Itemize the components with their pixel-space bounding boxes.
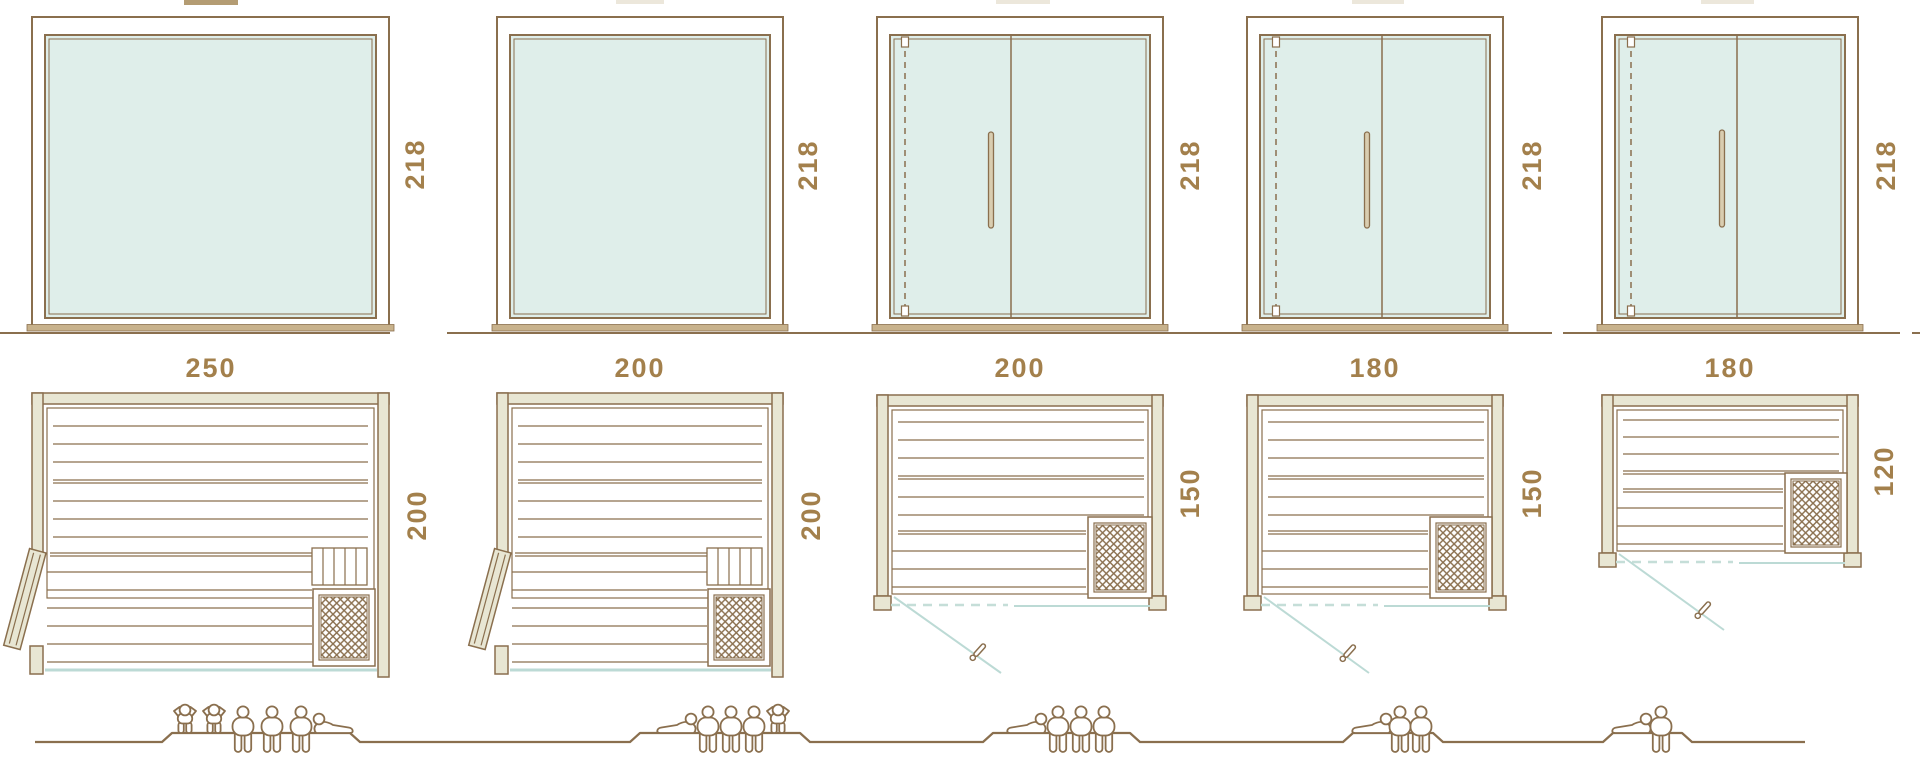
sauna-1-height-label: 218 (400, 138, 430, 189)
plan-wall-left (1247, 395, 1258, 596)
person-lying-icon (657, 714, 696, 733)
capacity-group-5 (1612, 706, 1671, 752)
plan-wall-right (1847, 395, 1858, 553)
sauna-3: 200 218 150 (872, 0, 1205, 673)
plan-door-post (495, 646, 508, 674)
plan-wall-top (1247, 395, 1503, 406)
elevation-sill (1242, 325, 1508, 332)
sauna-3-depth-label: 150 (1175, 467, 1205, 518)
person-sitting-icon (1071, 706, 1092, 752)
person-lying-icon (314, 714, 353, 733)
hinge-block-top (1273, 37, 1280, 47)
sauna-5-depth-label: 120 (1869, 445, 1899, 496)
capacity-group-1 (174, 705, 353, 752)
sauna-1: 250 218 200 (4, 0, 432, 677)
sauna-2-depth-label: 200 (796, 489, 826, 540)
heater-grille (1438, 525, 1484, 590)
sauna-4-elevation (1242, 17, 1508, 331)
plan-wall-right (1152, 395, 1163, 596)
heater-grille (321, 597, 367, 658)
person-sitting-icon (698, 706, 719, 752)
sauna-5-height-label: 218 (1871, 139, 1901, 190)
elevation-sill (27, 325, 394, 332)
sauna-size-diagram: 250 218 200 (0, 0, 1920, 770)
hinge-block-top (902, 37, 909, 47)
sauna-2-plan (469, 393, 783, 677)
person-standing-icon (767, 705, 789, 733)
sauna-3-height-label: 218 (1175, 139, 1205, 190)
hinge-block-bottom (902, 306, 909, 316)
person-sitting-icon (1651, 706, 1672, 752)
capacity-group-4 (1352, 706, 1431, 752)
plan-wall-right (1492, 395, 1503, 596)
person-sitting-icon (744, 706, 765, 752)
hinge-block-top (1628, 37, 1635, 47)
plan-wall-top (497, 393, 783, 404)
glass-door-swing-line (894, 597, 1001, 673)
open-wood-door (4, 549, 46, 650)
plan-wall-top (877, 395, 1163, 406)
sauna-2-elevation (492, 17, 788, 331)
sauna-5-width-label: 180 (1704, 353, 1755, 383)
cropped-top-fragment (996, 0, 1050, 4)
wall-foot-right (1844, 553, 1861, 567)
plan-door-post (30, 646, 43, 674)
person-sitting-icon (233, 706, 254, 752)
door-handle (1365, 132, 1370, 228)
side-bench (707, 548, 762, 585)
hinge-block-bottom (1273, 306, 1280, 316)
sauna-3-elevation (872, 17, 1168, 331)
sauna-3-width-label: 200 (994, 353, 1045, 383)
plan-wall-left (1602, 395, 1613, 553)
plan-wall-right (378, 393, 389, 677)
hinge-block-bottom (1628, 306, 1635, 316)
sauna-4-width-label: 180 (1349, 353, 1400, 383)
sauna-5-plan (1599, 395, 1861, 630)
sauna-1-elevation (27, 17, 394, 331)
plan-wall-top (1602, 395, 1858, 406)
glass-door-swing-line (1619, 554, 1724, 630)
person-sitting-icon (1411, 706, 1432, 752)
side-bench (312, 548, 367, 585)
sauna-1-width-label: 250 (185, 353, 236, 383)
door-handle (989, 132, 994, 228)
sauna-5: 180 218 120 (1597, 0, 1901, 630)
person-sitting-icon (721, 706, 742, 752)
diagram-canvas: 250 218 200 (0, 0, 1920, 770)
heater-grille (1096, 525, 1144, 590)
plan-wall-left (877, 395, 888, 596)
elevation-sill (872, 325, 1168, 332)
heater-grille (716, 597, 762, 658)
plan-wall-left (32, 393, 43, 555)
capacity-group-2 (657, 705, 789, 752)
plan-wall-top (32, 393, 389, 404)
capacity-group-3 (1007, 706, 1114, 752)
person-sitting-icon (262, 706, 283, 752)
glass-panel (45, 35, 376, 318)
person-lying-icon (1352, 714, 1391, 733)
sauna-1-depth-label: 200 (402, 489, 432, 540)
cropped-top-fragment (616, 0, 664, 4)
elevation-sill (492, 325, 788, 332)
open-wood-door (469, 549, 511, 650)
glass-panel (1615, 35, 1845, 318)
heater (1785, 473, 1847, 553)
plan-wall-right (772, 393, 783, 677)
wall-foot-left (1244, 596, 1261, 610)
door-handle (1720, 130, 1725, 227)
person-sitting-icon (1048, 706, 1069, 752)
sauna-4-plan (1244, 395, 1506, 673)
person-standing-icon (174, 705, 196, 733)
capacity-row (35, 705, 1805, 752)
person-sitting-icon (1390, 706, 1411, 752)
heater-grille (1793, 481, 1839, 545)
plan-wall-left (497, 393, 508, 555)
cropped-top-fragment (1701, 0, 1754, 4)
sauna-2: 200 218 200 (469, 0, 826, 677)
sauna-1-plan (4, 393, 389, 677)
sauna-2-width-label: 200 (614, 353, 665, 383)
sauna-5-elevation (1597, 17, 1863, 331)
wall-foot-left (1599, 553, 1616, 567)
sauna-3-plan (874, 395, 1166, 673)
cropped-top-fragment (184, 0, 238, 5)
heater (1088, 517, 1152, 598)
person-standing-icon (203, 705, 225, 733)
person-lying-icon (1007, 714, 1046, 733)
elevation-sill (1597, 325, 1863, 332)
person-lying-icon (1612, 714, 1651, 733)
heater (1430, 517, 1492, 598)
heater (708, 589, 770, 666)
wall-foot-left (874, 596, 891, 610)
sauna-2-height-label: 218 (793, 139, 823, 190)
person-sitting-icon (1094, 706, 1115, 752)
heater (313, 589, 375, 666)
glass-door-swing-line (1264, 597, 1369, 673)
cropped-top-fragment (1352, 0, 1404, 4)
glass-panel (890, 35, 1150, 318)
glass-panel (510, 35, 770, 318)
sauna-4-height-label: 218 (1517, 139, 1547, 190)
sauna-4: 180 218 150 (1242, 0, 1547, 673)
sauna-4-depth-label: 150 (1517, 467, 1547, 518)
person-sitting-icon (291, 706, 312, 752)
glass-panel (1260, 35, 1490, 318)
